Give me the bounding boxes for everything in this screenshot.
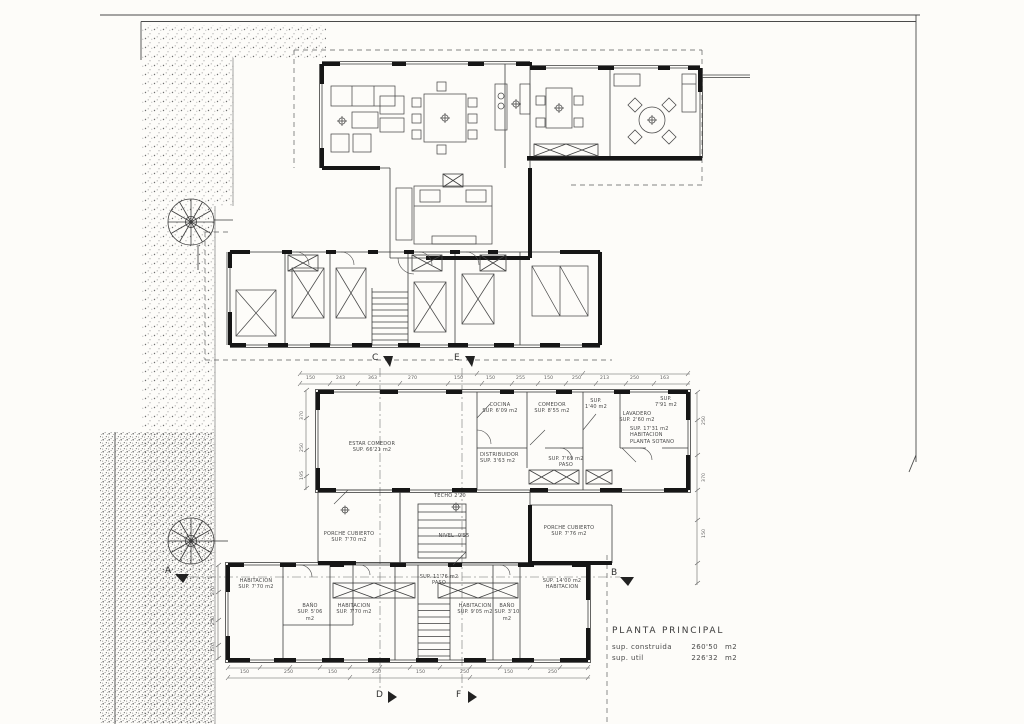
dim-top-1: 243 — [336, 376, 345, 381]
room-label-paso-2: SUP. 11'76 m2 PASO — [416, 574, 462, 587]
dim-right-1: 370 — [702, 473, 707, 482]
dim-left-1: 250 — [300, 443, 305, 452]
dim-left-lower-2: 170 — [211, 643, 216, 652]
room-label-distribuidor: DISTRIBUIDOR SUP. 3'63 m2 — [480, 452, 526, 465]
section-marker-a: A — [165, 566, 171, 576]
usable-area-row: sup. util 226'32 m2 — [612, 654, 772, 662]
dim-right-2: 150 — [702, 529, 707, 538]
usable-area-value: 226'32 — [684, 654, 718, 662]
dim-top-5: 150 — [486, 376, 495, 381]
room-label-comedor: COMEDOR SUP. 8'55 m2 — [528, 402, 576, 415]
dim-top-7: 150 — [544, 376, 553, 381]
usable-area-label: sup. util — [612, 654, 684, 662]
built-area-label: sup. construida — [612, 643, 684, 651]
dim-top-10: 250 — [630, 376, 639, 381]
section-marker-e: E — [454, 353, 460, 363]
dim-bottom-3: 250 — [372, 670, 381, 675]
dim-right-0: 250 — [702, 416, 707, 425]
dim-top-4: 150 — [454, 376, 463, 381]
dim-bottom-6: 150 — [504, 670, 513, 675]
dim-bottom-7: 250 — [548, 670, 557, 675]
living-furniture — [331, 74, 696, 154]
drawing-sheet: ESTAR COMEDOR SUP. 66'21 m2 COCINA SUP. … — [0, 0, 1024, 724]
room-label-porche-izquierdo: PORCHE CUBIERTO SUP. 7'70 m2 — [320, 531, 378, 544]
room-label-lavadero: LAVADERO SUP. 2'60 m2 — [618, 411, 656, 424]
dim-top-3: 270 — [408, 376, 417, 381]
dashed-guides — [205, 50, 702, 724]
room-label-porche-derecho: PORCHE CUBIERTO SUP. 7'76 m2 — [540, 525, 598, 538]
dim-left-0: 370 — [300, 411, 305, 420]
dim-top-11: 163 — [660, 376, 669, 381]
dim-top-9: 213 — [600, 376, 609, 381]
dim-bottom-4: 150 — [416, 670, 425, 675]
room-label-estar: ESTAR COMEDOR SUP. 66'21 m2 — [337, 441, 407, 454]
dim-left-2: 195 — [300, 471, 305, 480]
built-area-unit: m2 — [725, 643, 737, 651]
usable-area-unit: m2 — [725, 654, 737, 662]
dim-bottom-5: 250 — [460, 670, 469, 675]
title-block: PLANTA PRINCIPAL sup. construida 260'50 … — [612, 626, 772, 662]
dim-top-0: 150 — [306, 376, 315, 381]
dim-bottom-0: 150 — [240, 670, 249, 675]
room-label-terraza: SUP. 7'91 m2 — [652, 396, 680, 409]
annotation-techo: TECHO 2'20 — [428, 493, 472, 499]
room-label-cocina: COCINA SUP. 6'09 m2 — [478, 402, 522, 415]
room-label-bano-2: BAÑO SUP. 3'10 m2 — [492, 603, 522, 622]
plan-title: PLANTA PRINCIPAL — [612, 626, 772, 636]
door-symbols-upper — [337, 99, 657, 126]
room-label-habitacion-3: HABITACION SUP. 9'05 m2 — [454, 603, 496, 616]
section-marker-d: D — [376, 690, 383, 700]
dim-left-lower-0: 270 — [211, 586, 216, 595]
upper-plan — [227, 62, 750, 348]
built-area-row: sup. construida 260'50 m2 — [612, 643, 772, 651]
section-marker-c: C — [372, 353, 378, 363]
dim-bottom-1: 250 — [284, 670, 293, 675]
dim-top-6: 255 — [516, 376, 525, 381]
dim-top-2: 363 — [368, 376, 377, 381]
room-label-habitacion-2: HABITACION SUP. 7'70 m2 — [333, 603, 375, 616]
section-marker-f: F — [456, 690, 461, 700]
room-label-bano-1: BAÑO SUP. 5'06 m2 — [294, 603, 326, 622]
annotation-nivel: NIVEL -0'55 — [432, 533, 476, 539]
room-label-despensa: SUP. 1'40 m2 — [584, 398, 608, 411]
door-arcs-upper — [296, 252, 479, 274]
dim-bottom-2: 150 — [328, 670, 337, 675]
dim-top-8: 250 — [572, 376, 581, 381]
room-label-habitacion-1: HABITACION SUP. 7'70 m2 — [234, 578, 278, 591]
room-label-paso-1: SUP. 7'69 m2 PASO — [545, 456, 587, 469]
room-label-habitacion-4: SUP. 14'00 m2 HABITACION — [536, 578, 588, 591]
built-area-value: 260'50 — [684, 643, 718, 651]
section-marker-b: B — [611, 568, 617, 578]
room-label-habitacion-sotano: SUP. 17'31 m2 HABITACION PLANTA SOTANO — [630, 426, 686, 445]
dim-left-lower-1: 250 — [211, 616, 216, 625]
